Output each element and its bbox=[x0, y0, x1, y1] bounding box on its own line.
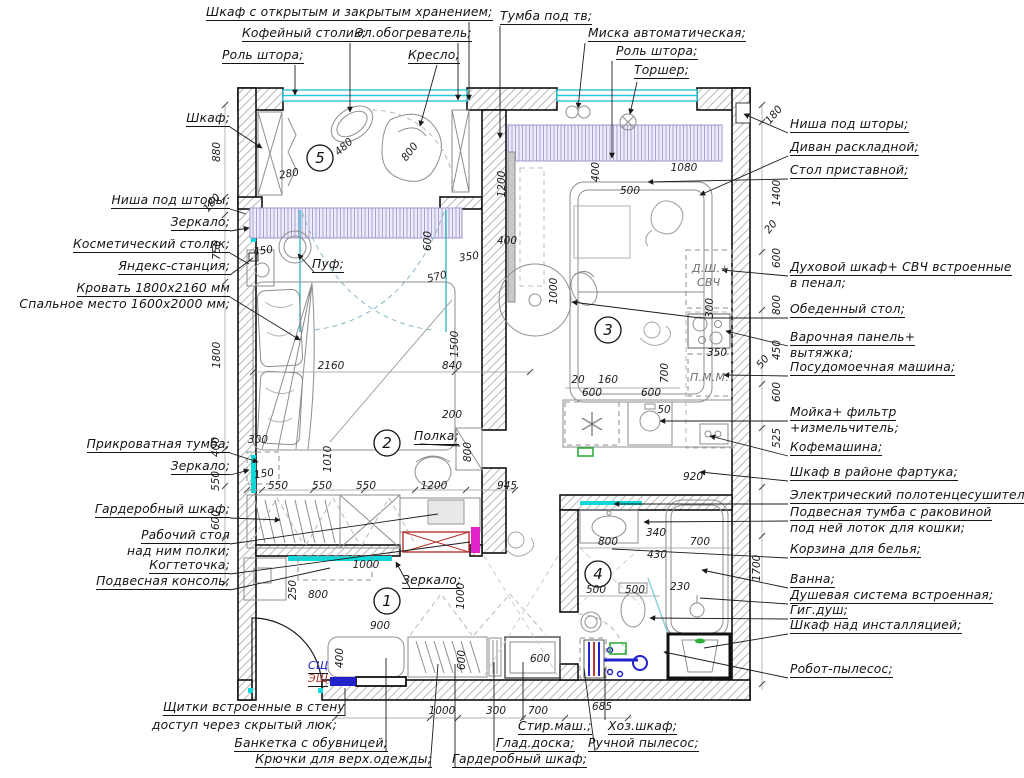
label-bathtub: Ванна; bbox=[790, 573, 835, 588]
label-vanity: Подвесная тумба с раковиной bbox=[790, 506, 992, 521]
label-oven-microwave: Духовой шкаф+ СВЧ встроенные bbox=[790, 261, 1012, 276]
svg-text:550: 550 bbox=[268, 480, 288, 492]
floor-plan-page: 1 2 3 4 5 880 180 750 1800 400 550 600 1… bbox=[0, 0, 1024, 778]
electric-panels-icon bbox=[356, 677, 406, 686]
label-mirror-1: Зеркало; bbox=[171, 216, 230, 231]
label-coffee-machine: Кофемашина; bbox=[790, 441, 882, 456]
svg-text:700: 700 bbox=[690, 536, 710, 548]
label-bedside-table: Прикроватная тумба; bbox=[87, 438, 230, 453]
label-sleeping-place: Спальное место 1600х2000 мм; bbox=[19, 298, 230, 311]
label-oven-microwave-2: в пенал; bbox=[790, 277, 846, 290]
svg-text:800: 800 bbox=[598, 536, 618, 548]
label-backsplash-cabinet: Шкаф в районе фартука; bbox=[790, 466, 958, 481]
svg-text:600: 600 bbox=[771, 248, 783, 268]
svg-text:525: 525 bbox=[771, 428, 783, 448]
label-roller-blind-1: Роль штора; bbox=[222, 49, 304, 64]
svg-text:1200: 1200 bbox=[421, 480, 448, 492]
svg-text:500: 500 bbox=[586, 584, 606, 596]
label-mirror-2: Зеркало; bbox=[171, 460, 230, 475]
svg-text:600: 600 bbox=[422, 231, 434, 251]
svg-text:840: 840 bbox=[442, 360, 462, 372]
label-towel-dryer: Электрический полотенцесушитель; bbox=[790, 489, 1024, 504]
svg-text:500: 500 bbox=[620, 185, 640, 197]
svg-text:400: 400 bbox=[497, 235, 517, 247]
svg-text:500: 500 bbox=[625, 584, 645, 596]
label-bed-size: Кровать 1800х2160 мм bbox=[77, 282, 231, 297]
tv-icon bbox=[508, 152, 515, 302]
label-sink-filter: Мойка+ фильтр bbox=[790, 406, 896, 421]
label-roller-blind-2: Роль штора; bbox=[616, 45, 698, 60]
label-side-table: Стол приставной; bbox=[790, 164, 908, 179]
label-hall-mirror: Зеркало; bbox=[402, 574, 461, 589]
svg-text:700: 700 bbox=[659, 363, 671, 383]
svg-text:430: 430 bbox=[647, 549, 667, 561]
label-utility-cabinet: Хоз.шкаф; bbox=[608, 720, 677, 735]
svg-text:1: 1 bbox=[382, 592, 392, 610]
svg-text:160: 160 bbox=[598, 374, 618, 386]
label-armchair: Кресло; bbox=[408, 49, 460, 64]
label-desk-shelves: над ним полки; bbox=[127, 545, 230, 558]
label-shower-system: Душевая система встроенная; bbox=[790, 589, 993, 604]
label-electric-panel: ЭЩ bbox=[308, 673, 328, 687]
svg-text:600: 600 bbox=[530, 653, 550, 665]
svg-text:900: 900 bbox=[370, 620, 390, 632]
svg-text:1000: 1000 bbox=[353, 559, 380, 571]
label-oven-abbrev-2: СВЧ bbox=[697, 277, 720, 289]
label-walkin-wardrobe: Гардеробный шкаф; bbox=[95, 503, 230, 518]
svg-text:300: 300 bbox=[704, 298, 716, 318]
svg-text:600: 600 bbox=[582, 387, 602, 399]
svg-text:3: 3 bbox=[603, 321, 613, 339]
svg-text:945: 945 bbox=[497, 480, 517, 492]
svg-text:685: 685 bbox=[592, 701, 612, 713]
label-shelf: Полка; bbox=[414, 430, 459, 445]
svg-text:450: 450 bbox=[771, 340, 783, 360]
label-hanging-console: Подвесная консоль; bbox=[96, 575, 230, 590]
label-dishwasher-abbrev: П.М.М. bbox=[690, 372, 729, 384]
svg-text:1500: 1500 bbox=[449, 330, 461, 357]
label-hood: вытяжка; bbox=[790, 347, 853, 360]
cat-scratcher-post-icon bbox=[471, 527, 480, 553]
label-tv-stand: Тумба под тв; bbox=[500, 10, 592, 25]
svg-text:250: 250 bbox=[287, 580, 299, 600]
svg-text:300: 300 bbox=[248, 434, 268, 446]
svg-text:1010: 1010 bbox=[322, 445, 334, 472]
label-hygienic-shower: Гиг.душ; bbox=[790, 604, 848, 619]
label-yandex-station: Яндекс-станция; bbox=[118, 260, 230, 275]
svg-text:2160: 2160 bbox=[318, 360, 345, 372]
svg-text:1000: 1000 bbox=[548, 277, 560, 304]
svg-text:1400: 1400 bbox=[771, 179, 783, 206]
label-wardrobe-open-closed: Шкаф с открытым и закрытым хранением; bbox=[206, 6, 493, 21]
label-panels-access: доступ через скрытый люк; bbox=[152, 719, 337, 732]
label-panels-in-wall: Щитки встроенные в стену bbox=[163, 701, 345, 716]
svg-text:1700: 1700 bbox=[751, 554, 763, 581]
label-sofa-bed: Диван раскладной; bbox=[790, 141, 919, 156]
svg-text:4: 4 bbox=[593, 565, 603, 583]
label-oven-abbrev-1: Д.Ш.+ bbox=[692, 263, 730, 275]
label-cat-scratcher: Когтеточка; bbox=[149, 559, 230, 574]
svg-text:5: 5 bbox=[315, 149, 325, 167]
svg-text:350: 350 bbox=[707, 347, 727, 359]
svg-text:550: 550 bbox=[312, 480, 332, 492]
svg-text:700: 700 bbox=[528, 705, 548, 717]
label-dishwasher: Посудомоечная машина; bbox=[790, 361, 955, 376]
svg-text:800: 800 bbox=[462, 442, 474, 462]
svg-text:920: 920 bbox=[683, 471, 703, 483]
svg-text:600: 600 bbox=[771, 382, 783, 402]
label-curtain-niche-left: Ниша под шторы; bbox=[111, 194, 230, 209]
label-cabinet-above-installation: Шкаф над инсталляцией; bbox=[790, 619, 962, 634]
label-cat-litter: под ней лоток для кошки; bbox=[790, 522, 965, 535]
curtain-niche-right bbox=[736, 103, 750, 123]
label-dining-table: Обеденный стол; bbox=[790, 303, 905, 318]
label-coat-hooks: Крючки для верх.одежды; bbox=[255, 753, 432, 768]
svg-text:1000: 1000 bbox=[429, 705, 456, 717]
label-curtain-niche-right: Ниша под шторы; bbox=[790, 118, 909, 133]
svg-text:340: 340 bbox=[646, 527, 666, 539]
label-ironing-board: Глад.доска; bbox=[496, 737, 575, 752]
svg-text:550: 550 bbox=[356, 480, 376, 492]
label-floor-lamp: Торшер; bbox=[634, 64, 689, 79]
svg-text:1200: 1200 bbox=[496, 170, 508, 197]
svg-text:600: 600 bbox=[456, 650, 468, 670]
label-desk: Рабочий стол bbox=[141, 529, 230, 544]
label-wardrobe: Шкаф; bbox=[186, 112, 230, 127]
svg-text:50: 50 bbox=[657, 404, 671, 416]
label-pouf: Пуф; bbox=[312, 258, 344, 273]
toilet-installation bbox=[668, 634, 730, 678]
label-cosmetic-table: Косметический столик; bbox=[73, 238, 230, 253]
printer-icon bbox=[428, 500, 464, 524]
svg-text:800: 800 bbox=[308, 589, 328, 601]
svg-text:800: 800 bbox=[771, 295, 783, 315]
label-auto-pet-bowl: Миска автоматическая; bbox=[588, 27, 746, 42]
label-washing-machine: Стир.маш.; bbox=[518, 720, 592, 735]
svg-text:20: 20 bbox=[571, 374, 585, 386]
label-hob: Варочная панель+ bbox=[790, 331, 915, 346]
label-disposer: +измельчитель; bbox=[790, 422, 899, 435]
label-robot-vacuum: Робот-пылесос; bbox=[790, 663, 893, 678]
low-current-panel-icon bbox=[330, 677, 356, 686]
label-hall-wardrobe: Гардеробный шкаф; bbox=[452, 753, 587, 768]
label-hand-vacuum: Ручной пылесос; bbox=[588, 737, 699, 752]
svg-text:400: 400 bbox=[334, 648, 346, 668]
svg-text:300: 300 bbox=[486, 705, 506, 717]
svg-text:600: 600 bbox=[641, 387, 661, 399]
svg-text:230: 230 bbox=[670, 581, 690, 593]
svg-text:1080: 1080 bbox=[671, 162, 698, 174]
label-electric-heater: Эл.обогреватель; bbox=[355, 27, 472, 42]
svg-text:880: 880 bbox=[211, 142, 223, 162]
svg-text:400: 400 bbox=[590, 162, 602, 182]
label-bench-shoe-rack: Банкетка с обувницей; bbox=[234, 737, 388, 752]
svg-text:200: 200 bbox=[442, 409, 462, 421]
svg-text:2: 2 bbox=[382, 434, 392, 452]
label-laundry-basket: Корзина для белья; bbox=[790, 543, 921, 558]
svg-text:1800: 1800 bbox=[211, 341, 223, 368]
label-coffee-table: Кофейный столик; bbox=[242, 27, 366, 42]
